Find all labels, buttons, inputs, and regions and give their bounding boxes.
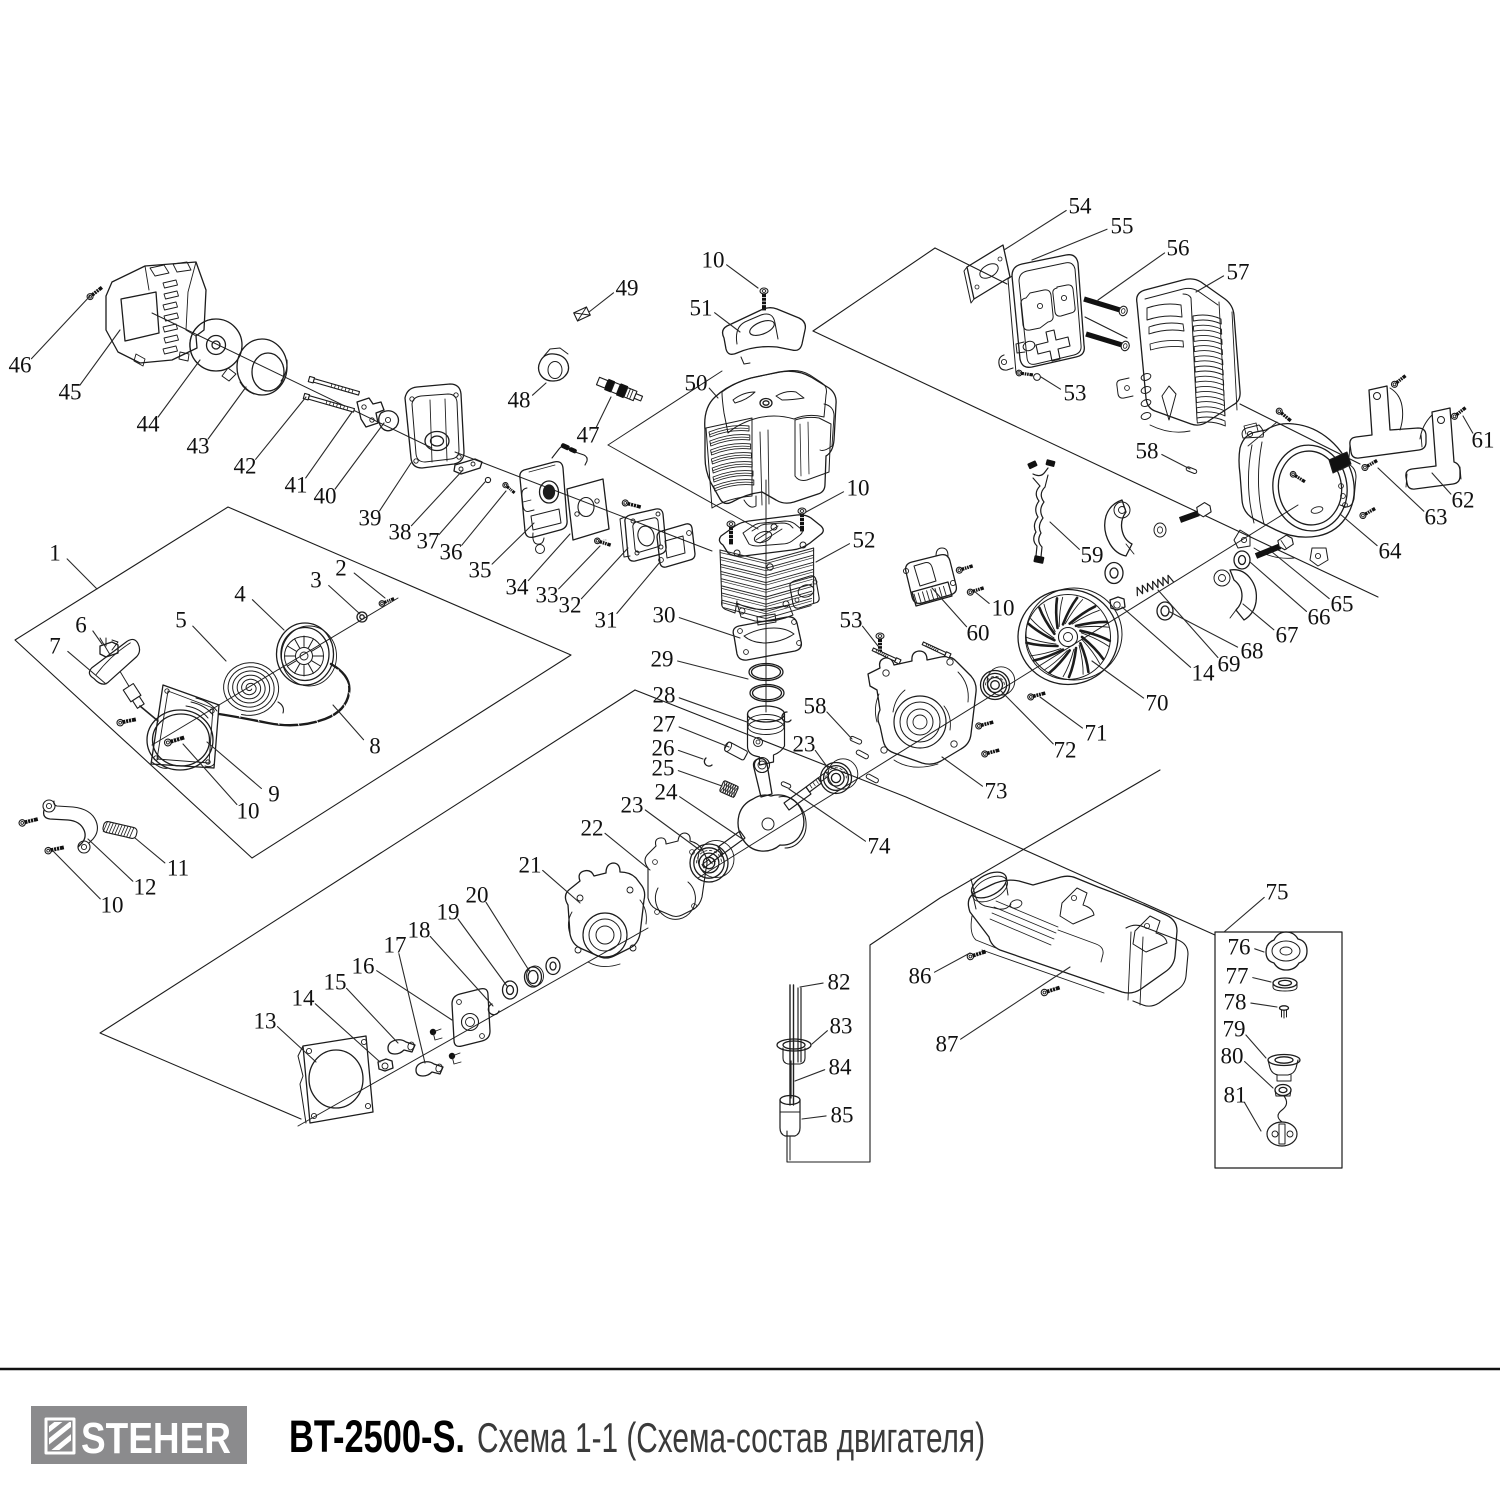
svg-text:42: 42 — [234, 454, 257, 479]
svg-text:53: 53 — [840, 608, 863, 633]
svg-text:31: 31 — [595, 608, 618, 633]
svg-text:21: 21 — [519, 853, 542, 878]
svg-text:5: 5 — [175, 608, 187, 633]
svg-text:32: 32 — [559, 593, 582, 618]
svg-text:61: 61 — [1472, 428, 1495, 453]
svg-text:10: 10 — [992, 596, 1015, 621]
svg-text:85: 85 — [831, 1103, 854, 1128]
svg-text:17: 17 — [384, 933, 407, 958]
svg-text:10: 10 — [847, 476, 870, 501]
svg-text:19: 19 — [437, 900, 460, 925]
svg-text:65: 65 — [1331, 592, 1354, 617]
svg-text:13: 13 — [254, 1009, 277, 1034]
svg-text:9: 9 — [268, 782, 280, 807]
svg-text:47: 47 — [577, 423, 600, 448]
svg-text:24: 24 — [655, 780, 679, 805]
svg-text:10: 10 — [237, 799, 260, 824]
svg-text:73: 73 — [985, 779, 1008, 804]
svg-text:STEHER: STEHER — [81, 1414, 231, 1463]
svg-text:62: 62 — [1452, 488, 1475, 513]
svg-text:46: 46 — [9, 353, 32, 378]
svg-text:20: 20 — [466, 883, 489, 908]
svg-text:38: 38 — [389, 520, 412, 545]
svg-text:72: 72 — [1054, 738, 1077, 763]
svg-text:78: 78 — [1224, 990, 1247, 1015]
svg-text:45: 45 — [59, 380, 82, 405]
svg-text:63: 63 — [1425, 505, 1448, 530]
svg-text:15: 15 — [324, 970, 347, 995]
svg-text:58: 58 — [804, 694, 827, 719]
svg-text:12: 12 — [134, 875, 157, 900]
svg-text:52: 52 — [853, 528, 876, 553]
svg-text:55: 55 — [1111, 214, 1134, 239]
svg-text:82: 82 — [828, 970, 851, 995]
svg-text:43: 43 — [187, 434, 210, 459]
svg-text:27: 27 — [653, 712, 676, 737]
svg-text:75: 75 — [1266, 880, 1289, 905]
svg-text:53: 53 — [1064, 381, 1087, 406]
svg-text:57: 57 — [1227, 260, 1250, 285]
svg-text:40: 40 — [314, 484, 337, 509]
svg-text:34: 34 — [506, 575, 530, 600]
svg-text:35: 35 — [469, 558, 492, 583]
svg-text:14: 14 — [292, 986, 316, 1011]
svg-text:77: 77 — [1226, 964, 1249, 989]
svg-text:80: 80 — [1221, 1044, 1244, 1069]
svg-text:76: 76 — [1228, 935, 1251, 960]
svg-text:23: 23 — [621, 793, 644, 818]
svg-text:68: 68 — [1241, 639, 1264, 664]
svg-text:22: 22 — [581, 816, 604, 841]
svg-text:33: 33 — [536, 583, 559, 608]
svg-text:84: 84 — [829, 1055, 853, 1080]
svg-text:1: 1 — [49, 541, 61, 566]
svg-text:79: 79 — [1223, 1017, 1246, 1042]
svg-text:48: 48 — [508, 388, 531, 413]
svg-text:87: 87 — [936, 1032, 959, 1057]
svg-text:81: 81 — [1224, 1083, 1247, 1108]
svg-text:29: 29 — [651, 647, 674, 672]
svg-text:83: 83 — [830, 1014, 853, 1039]
svg-text:37: 37 — [417, 529, 440, 554]
svg-text:14: 14 — [1192, 661, 1216, 686]
svg-text:4: 4 — [234, 582, 246, 607]
svg-text:69: 69 — [1218, 652, 1241, 677]
svg-text:Схема 1-1 (Схема-состав двигат: Схема 1-1 (Схема-состав двигателя) — [477, 1414, 985, 1461]
svg-text:26: 26 — [652, 736, 675, 761]
svg-text:7: 7 — [49, 634, 61, 659]
svg-text:28: 28 — [653, 683, 676, 708]
svg-text:70: 70 — [1146, 691, 1169, 716]
svg-text:41: 41 — [285, 473, 308, 498]
svg-text:23: 23 — [793, 732, 816, 757]
svg-text:60: 60 — [967, 621, 990, 646]
svg-text:86: 86 — [909, 964, 932, 989]
svg-text:30: 30 — [653, 603, 676, 628]
svg-text:67: 67 — [1276, 623, 1299, 648]
svg-text:71: 71 — [1085, 721, 1108, 746]
svg-text:56: 56 — [1167, 236, 1190, 261]
svg-text:64: 64 — [1379, 539, 1403, 564]
svg-text:3: 3 — [310, 568, 322, 593]
svg-text:58: 58 — [1136, 439, 1159, 464]
svg-text:BT-2500-S.: BT-2500-S. — [289, 1411, 465, 1462]
svg-text:16: 16 — [352, 954, 375, 979]
svg-text:18: 18 — [408, 918, 431, 943]
svg-text:49: 49 — [616, 276, 639, 301]
svg-text:66: 66 — [1308, 605, 1331, 630]
svg-text:11: 11 — [167, 856, 189, 881]
svg-text:36: 36 — [440, 540, 463, 565]
svg-text:74: 74 — [868, 834, 892, 859]
svg-text:2: 2 — [335, 556, 347, 581]
svg-text:6: 6 — [75, 613, 87, 638]
svg-text:39: 39 — [359, 506, 382, 531]
svg-text:51: 51 — [690, 296, 713, 321]
svg-text:8: 8 — [369, 734, 381, 759]
svg-text:50: 50 — [685, 371, 708, 396]
svg-text:54: 54 — [1069, 194, 1093, 219]
svg-text:44: 44 — [137, 412, 161, 437]
svg-text:10: 10 — [101, 893, 124, 918]
svg-text:59: 59 — [1081, 543, 1104, 568]
svg-text:10: 10 — [702, 248, 725, 273]
